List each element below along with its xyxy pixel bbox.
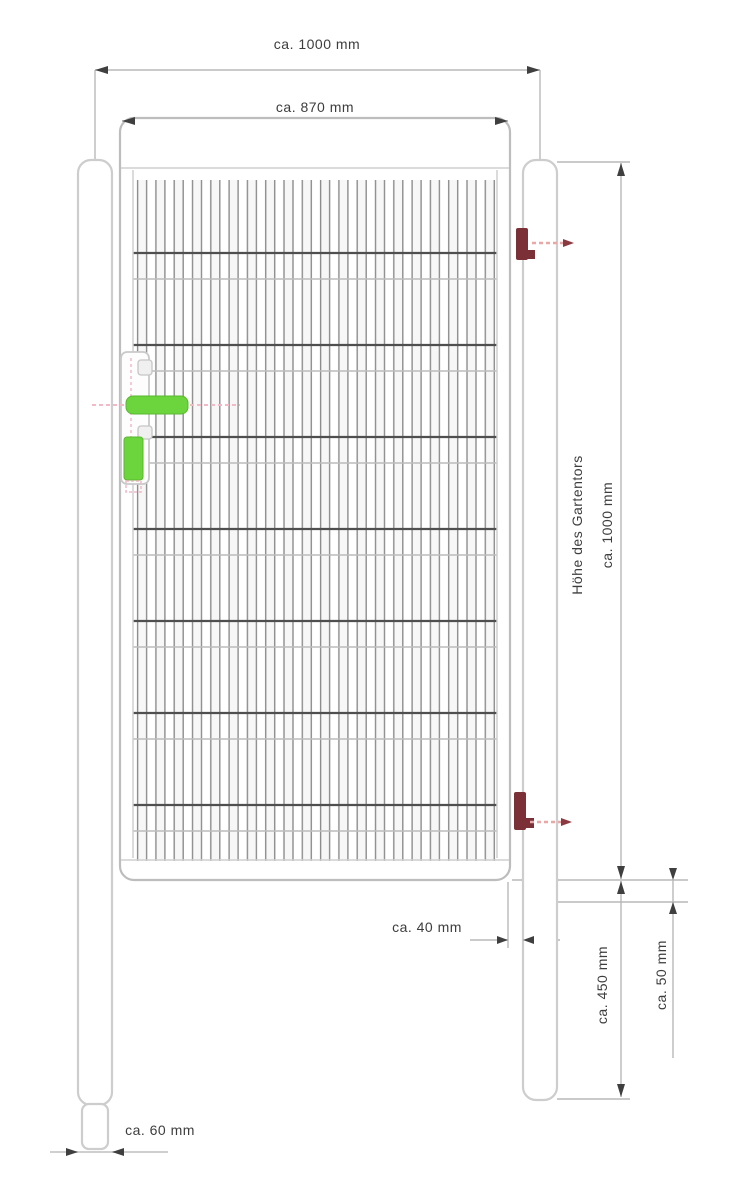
- gate-technical-drawing: ca. 1000 mm ca. 870 mm Höhe des Gartento…: [0, 0, 732, 1200]
- dimension-label-gate-height-text: Höhe des Gartentors: [569, 415, 585, 635]
- gate-leaf: [120, 118, 510, 880]
- dimension-label-frame-post-gap: ca. 40 mm: [357, 919, 497, 935]
- dimension-label-post-width: ca. 60 mm: [100, 1122, 220, 1138]
- dimension-label-frame-width: ca. 870 mm: [235, 99, 395, 115]
- mesh-vertical-bars: [133, 180, 497, 861]
- right-post: [523, 160, 557, 1100]
- lock-cylinder-icon: [124, 437, 143, 480]
- dimension-label-overall-width: ca. 1000 mm: [237, 36, 397, 52]
- left-post: [78, 160, 112, 1105]
- dimension-label-gate-height-value: ca. 1000 mm: [599, 445, 615, 605]
- drawing-linework: [0, 0, 732, 1200]
- dimension-label-ground-clearance: ca. 50 mm: [653, 920, 669, 1030]
- lock-tab-top: [138, 360, 152, 375]
- dimension-label-post-depth: ca. 450 mm: [594, 925, 610, 1045]
- handle-icon: [126, 396, 188, 414]
